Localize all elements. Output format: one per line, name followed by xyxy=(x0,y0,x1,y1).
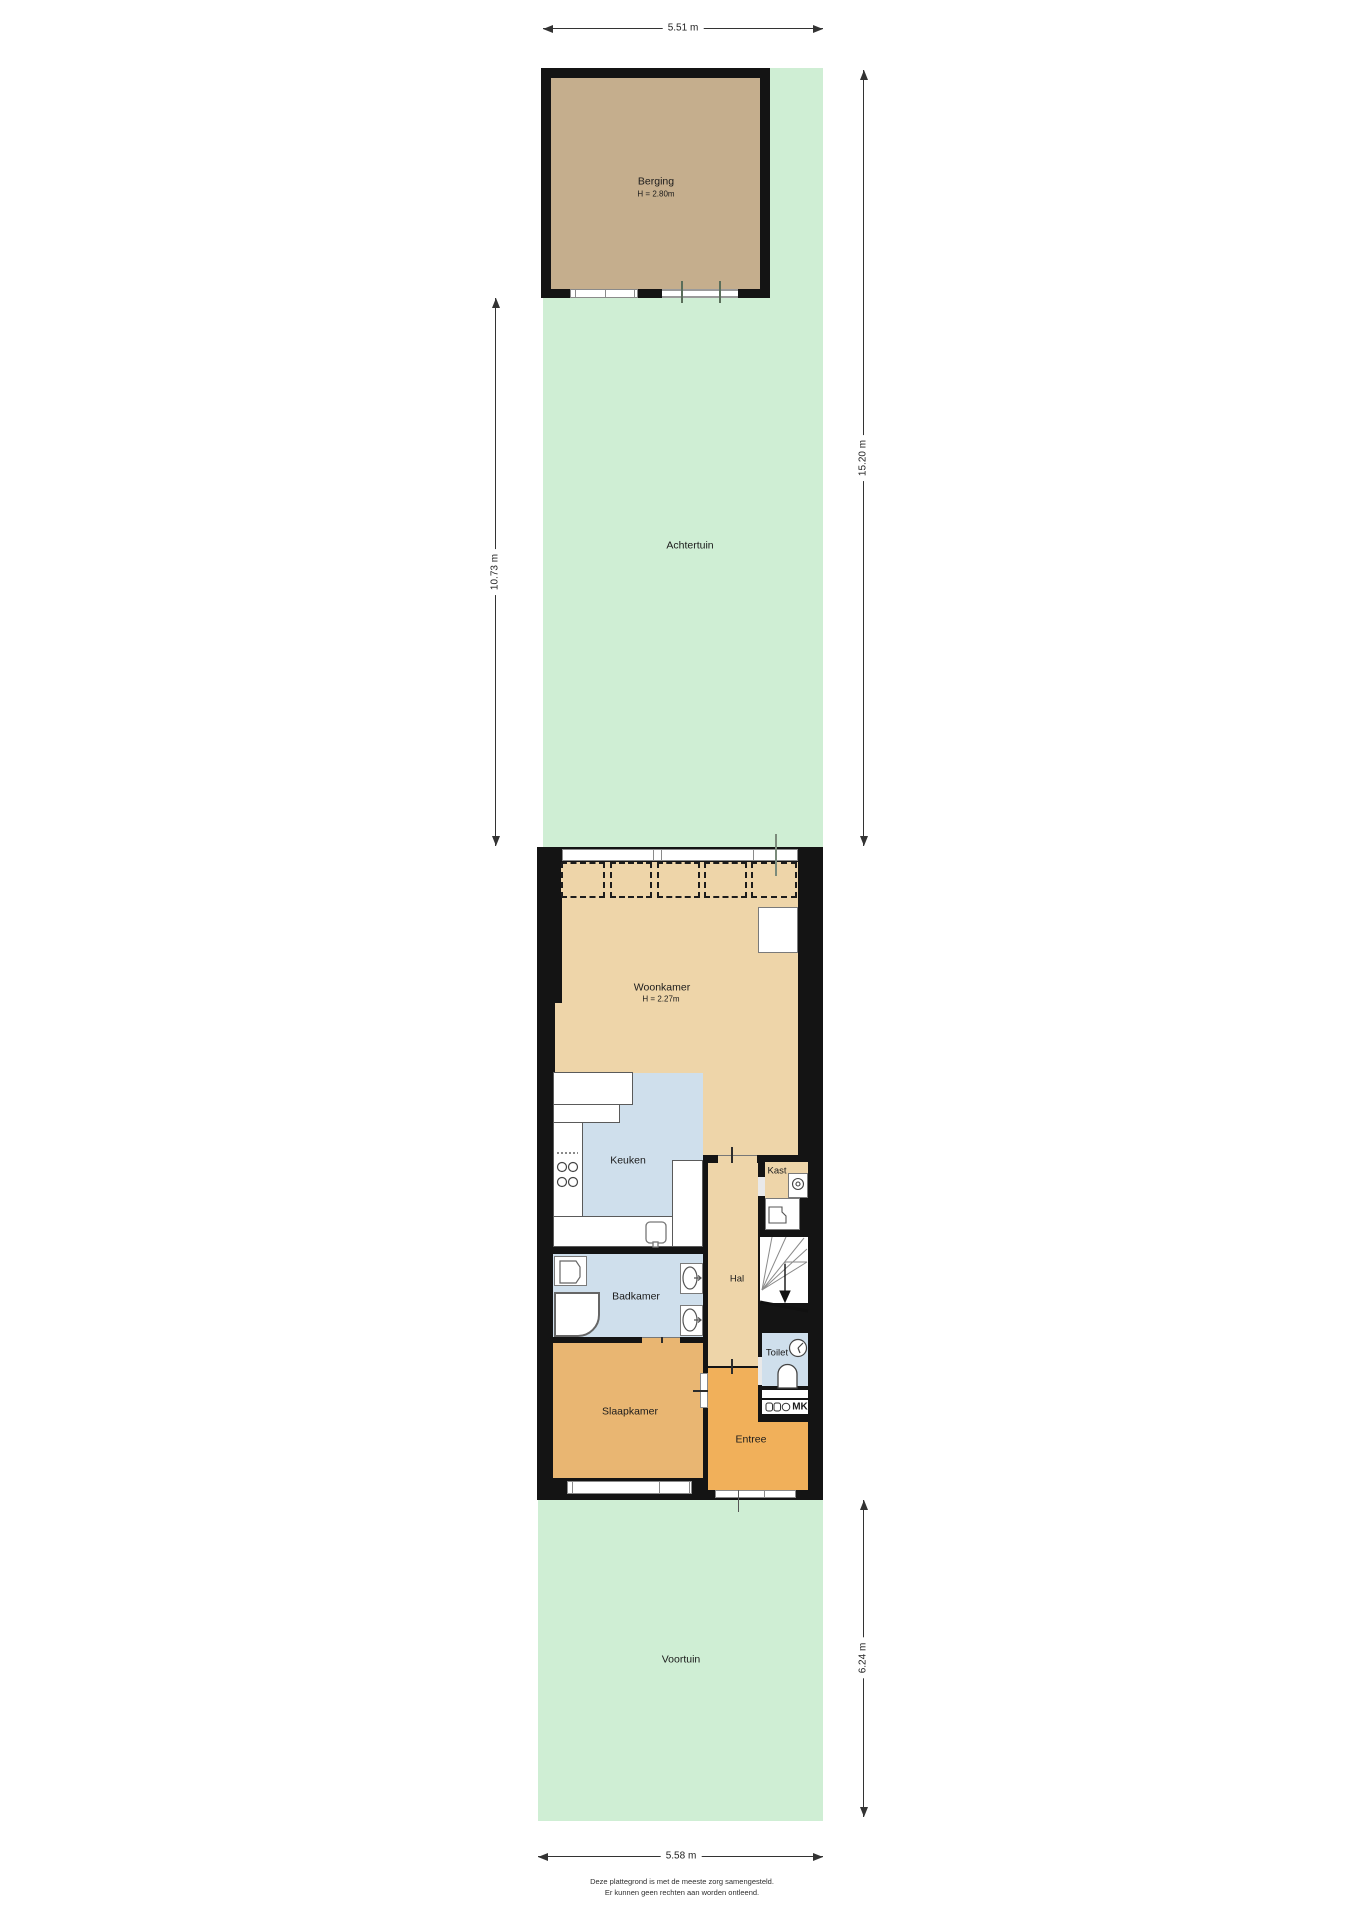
arrowhead-down xyxy=(860,836,868,846)
arrowhead-up xyxy=(860,70,868,80)
entree-label: Entree xyxy=(736,1435,767,1446)
arrowhead-down xyxy=(492,836,500,846)
boiler-icon xyxy=(793,1179,804,1190)
kast-label: Kast xyxy=(767,1166,786,1177)
washbasin-icon xyxy=(560,1261,580,1283)
arrowhead-right xyxy=(813,1853,823,1861)
berging-label: Berging xyxy=(638,177,674,188)
appliance-icon xyxy=(769,1207,786,1223)
disclaimer-line2: Er kunnen geen rechten aan worden ontlee… xyxy=(590,1888,774,1899)
dim-bottom-label: 5.58 m xyxy=(661,1850,702,1863)
arrowhead-right xyxy=(813,25,823,33)
arrowhead-left xyxy=(538,1853,548,1861)
slaapkamer-label: Slaapkamer xyxy=(602,1407,658,1418)
arrowhead-up xyxy=(492,298,500,308)
voortuin-label: Voortuin xyxy=(662,1655,701,1666)
dim-right-upper-label: 15.20 m xyxy=(857,435,870,481)
stairs-direction-arrow xyxy=(760,1264,808,1311)
floorplan-canvas: Berging H = 2.80m Achtertuin Woonkamer H… xyxy=(0,0,1358,1920)
stove-icon xyxy=(557,1153,578,1187)
dim-left-label: 10.73 m xyxy=(489,549,502,595)
toilet-bowl-icon xyxy=(778,1365,797,1389)
dim-right-lower-label: 6.24 m xyxy=(857,1638,870,1679)
arrowhead-up xyxy=(860,1500,868,1510)
fixtures-layer xyxy=(0,0,1358,1920)
toilet-label: Toilet xyxy=(766,1348,788,1359)
keuken-label: Keuken xyxy=(610,1156,646,1167)
badkamer-label: Badkamer xyxy=(612,1292,660,1303)
woonkamer-height-label: H = 2.27m xyxy=(642,994,679,1005)
arrowhead-down xyxy=(860,1807,868,1817)
meterkast-label: MK xyxy=(792,1402,808,1413)
achtertuin-label: Achtertuin xyxy=(666,541,713,552)
hal-label: Hal xyxy=(730,1274,744,1285)
disclaimer: Deze plattegrond is met de meeste zorg s… xyxy=(590,1877,774,1898)
kitchen-sink-icon xyxy=(646,1222,666,1247)
arrowhead-left xyxy=(543,25,553,33)
dim-top-label: 5.51 m xyxy=(663,22,704,35)
bathroom-sink-icons xyxy=(683,1267,701,1331)
berging-height-label: H = 2.80m xyxy=(637,189,674,200)
meter-icons xyxy=(766,1403,790,1411)
toilet-fountain-icon xyxy=(790,1340,807,1357)
disclaimer-line1: Deze plattegrond is met de meeste zorg s… xyxy=(590,1877,774,1888)
woonkamer-label: Woonkamer xyxy=(634,983,690,994)
